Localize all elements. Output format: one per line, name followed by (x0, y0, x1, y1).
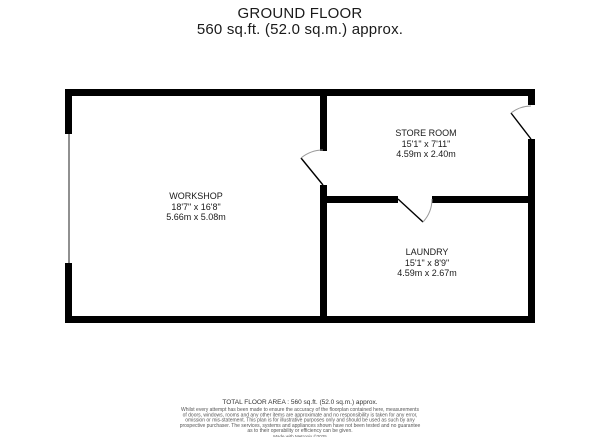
room-dims-metric: 4.59m x 2.40m (395, 149, 456, 160)
door-laundry-leaf (398, 199, 423, 222)
door-store-room-exterior-arc (511, 106, 531, 113)
room-label-workshop: WORKSHOP 18'7" x 16'8" 5.66m x 5.08m (166, 191, 226, 223)
door-workshop-store-room-arc (301, 150, 323, 158)
door-workshop-store-room-leaf (301, 158, 323, 185)
door-laundry-arc (423, 199, 432, 222)
room-label-store-room: STORE ROOM 15'1" x 7'11" 4.59m x 2.40m (395, 128, 456, 160)
room-name: WORKSHOP (166, 191, 226, 202)
floorplan-page: GROUND FLOOR 560 sq.ft. (52.0 sq.m.) app… (0, 0, 600, 437)
room-dims-imperial: 15'1" x 8'9" (397, 258, 457, 269)
doors-layer (0, 0, 600, 437)
room-dims-metric: 4.59m x 2.67m (397, 268, 457, 279)
room-name: STORE ROOM (395, 128, 456, 139)
room-dims-imperial: 18'7" x 16'8" (166, 202, 226, 213)
total-floor-area: TOTAL FLOOR AREA : 560 sq.ft. (52.0 sq.m… (25, 398, 575, 406)
room-dims-imperial: 15'1" x 7'11" (395, 139, 456, 150)
room-dims-metric: 5.66m x 5.08m (166, 212, 226, 223)
room-label-laundry: LAUNDRY 15'1" x 8'9" 4.59m x 2.67m (397, 247, 457, 279)
floorplan-drawing: WORKSHOP 18'7" x 16'8" 5.66m x 5.08m STO… (0, 0, 600, 437)
door-store-room-exterior-leaf (511, 113, 531, 139)
footer: TOTAL FLOOR AREA : 560 sq.ft. (52.0 sq.m… (25, 398, 575, 437)
room-name: LAUNDRY (397, 247, 457, 258)
